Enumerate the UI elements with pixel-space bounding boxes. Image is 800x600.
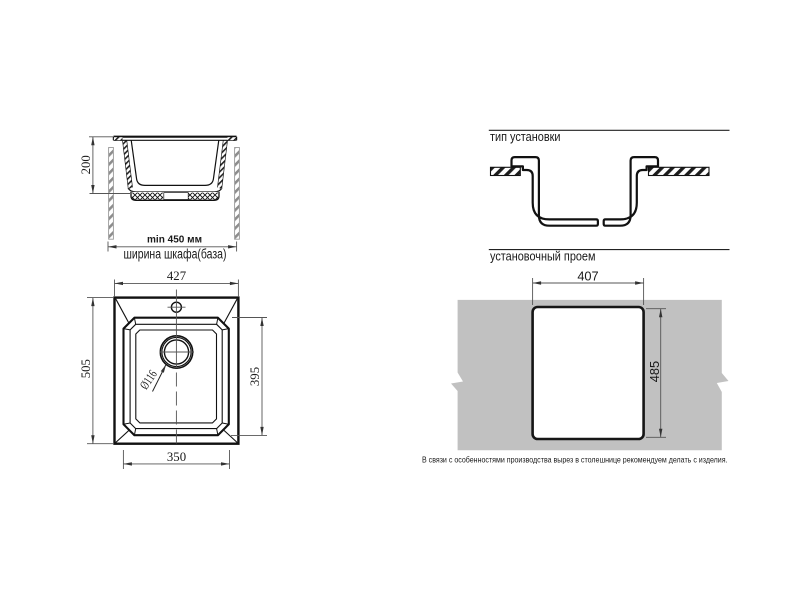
svg-text:ширина шкафа(база): ширина шкафа(база)	[124, 246, 227, 261]
svg-text:В связи с особенностями произв: В связи с особенностями производства выр…	[422, 454, 728, 464]
svg-text:485: 485	[647, 361, 662, 382]
svg-text:установочный проем: установочный проем	[490, 250, 596, 264]
svg-text:505: 505	[79, 359, 93, 378]
svg-text:тип установки: тип установки	[490, 130, 561, 144]
svg-text:min 450 мм: min 450 мм	[147, 235, 202, 246]
svg-text:427: 427	[167, 269, 187, 283]
svg-text:395: 395	[248, 367, 262, 386]
svg-text:200: 200	[79, 155, 93, 174]
svg-text:350: 350	[167, 450, 186, 464]
svg-text:407: 407	[577, 268, 598, 283]
